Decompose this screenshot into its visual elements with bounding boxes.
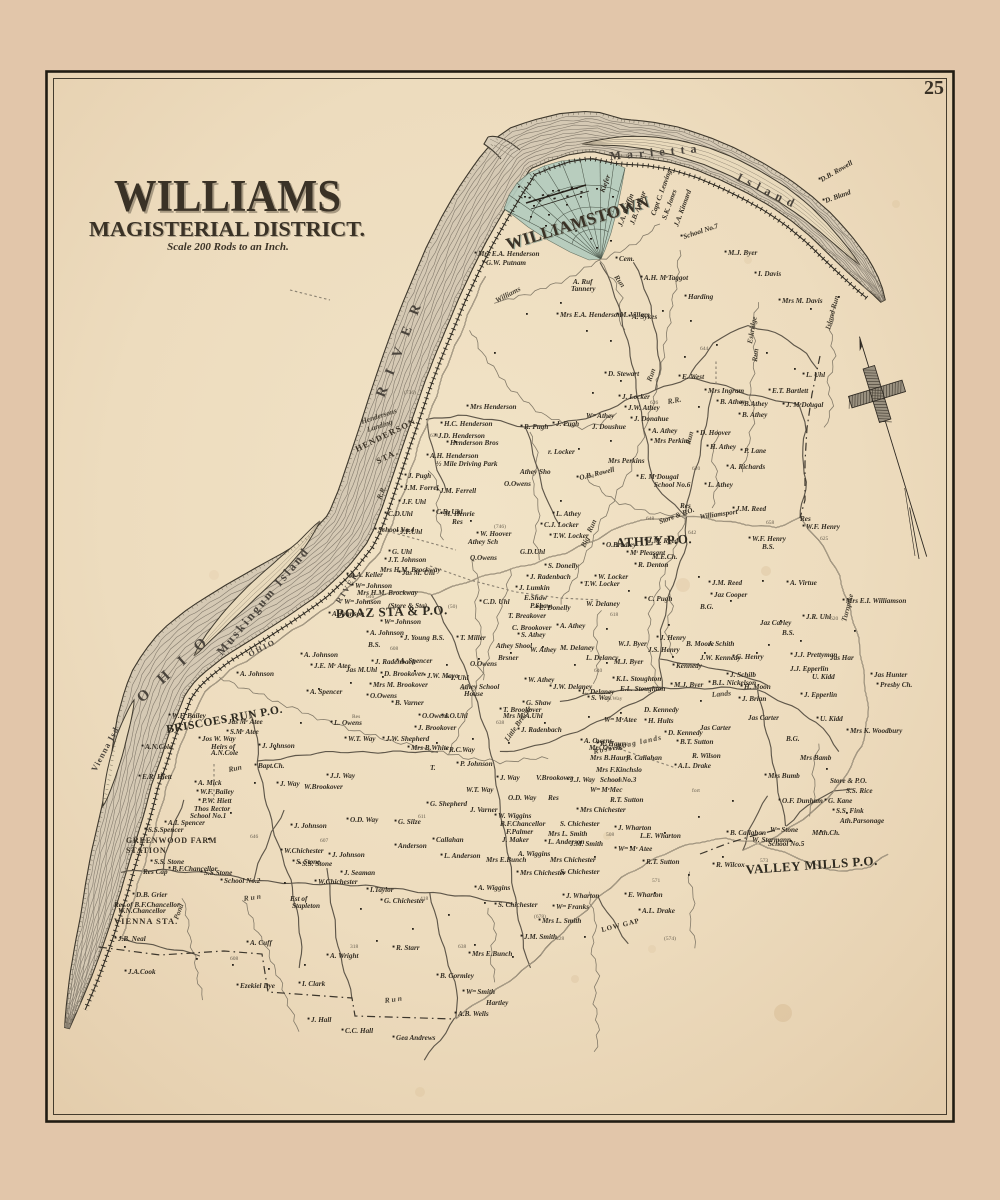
- svg-text:A.A. Keller: A.A. Keller: [349, 571, 383, 579]
- svg-text:Cem.: Cem.: [619, 255, 635, 263]
- svg-text:A.L. Drake: A.L. Drake: [641, 907, 676, 915]
- svg-text:J.M. Reed: J.M. Reed: [711, 579, 743, 587]
- svg-text:Mrs E.A. Henderson: Mrs E.A. Henderson: [477, 250, 540, 258]
- svg-text:A.H. Henderson: A.H. Henderson: [429, 452, 479, 460]
- svg-text:Wᵐ Johnson: Wᵐ Johnson: [384, 618, 421, 626]
- svg-text:J. Hall: J. Hall: [310, 1016, 331, 1024]
- svg-text:M.J. Byer: M.J. Byer: [673, 681, 704, 689]
- svg-text:P. Lane: P. Lane: [744, 447, 767, 455]
- svg-text:A. Wiggins: A. Wiggins: [477, 884, 511, 892]
- svg-text:Mrs F.Kinchslo: Mrs F.Kinchslo: [595, 766, 642, 774]
- svg-text:611: 611: [418, 814, 426, 820]
- svg-text:Res: Res: [799, 515, 811, 523]
- svg-text:D.B. Grier: D.B. Grier: [135, 891, 168, 899]
- svg-text:WILLIAMS: WILLIAMS: [114, 171, 341, 221]
- svg-text:G. Uhl: G. Uhl: [392, 548, 412, 556]
- svg-text:J. Epperlin: J. Epperlin: [803, 691, 837, 699]
- svg-text:A.Johnson: A.Johnson: [331, 610, 364, 618]
- svg-text:A. Wright: A. Wright: [329, 952, 359, 960]
- svg-text:A. Sykes: A. Sykes: [631, 313, 657, 321]
- svg-text:607: 607: [320, 838, 329, 844]
- svg-text:Bapt.Ch.: Bapt.Ch.: [257, 762, 285, 770]
- svg-text:638: 638: [496, 720, 505, 726]
- svg-text:Jas Hunter: Jas Hunter: [873, 671, 908, 679]
- svg-text:628: 628: [460, 686, 469, 692]
- svg-text:J. Brookover: J. Brookover: [417, 724, 457, 732]
- svg-text:Mrs M. Davis: Mrs M. Davis: [781, 297, 823, 305]
- svg-text:Mrs Chichester: Mrs Chichester: [519, 869, 566, 877]
- svg-text:G. Chichester: G. Chichester: [384, 897, 425, 905]
- svg-text:B.G.: B.G.: [785, 735, 800, 743]
- svg-text:H. Moon: H. Moon: [743, 683, 771, 691]
- svg-text:646: 646: [366, 594, 375, 600]
- svg-text:W.Chichester: W.Chichester: [284, 847, 324, 855]
- svg-text:J. Maker: J. Maker: [501, 836, 529, 844]
- svg-text:W.F. Henry: W.F. Henry: [806, 523, 841, 531]
- svg-text:C. Brookover: C. Brookover: [512, 624, 552, 632]
- svg-text:O.D. Way: O.D. Way: [508, 794, 537, 802]
- svg-text:640: 640: [594, 668, 603, 674]
- svg-text:Mrs Chichester: Mrs Chichester: [549, 856, 596, 864]
- svg-text:Wᵐ Mᶜ Atee: Wᵐ Mᶜ Atee: [618, 845, 653, 853]
- svg-text:Brsner: Brsner: [497, 654, 519, 662]
- svg-text:Athey Sho: Athey Sho: [519, 468, 551, 476]
- svg-text:J.J. Way: J.J. Way: [329, 772, 356, 780]
- svg-text:E. Wharton: E. Wharton: [627, 891, 663, 899]
- svg-text:A.H. MᶜTaggot: A.H. MᶜTaggot: [643, 274, 689, 282]
- svg-text:J.F.Uhl: J.F.Uhl: [399, 528, 422, 536]
- svg-text:I.O.Uhl: I.O.Uhl: [444, 712, 468, 720]
- svg-text:A. Johnson: A. Johnson: [369, 629, 404, 637]
- svg-text:Res: Res: [679, 502, 691, 510]
- svg-text:H. Hults: H. Hults: [647, 717, 674, 725]
- svg-text:J. Doushue: J. Doushue: [591, 423, 627, 431]
- svg-text:A. Athey: A. Athey: [651, 427, 678, 435]
- svg-text:(574): (574): [664, 935, 676, 942]
- svg-text:J. Locker: J. Locker: [621, 393, 650, 401]
- svg-text:Jos W. Way: Jos W. Way: [201, 735, 236, 743]
- svg-text:O.F. Dunham: O.F. Dunham: [782, 797, 823, 805]
- svg-text:F.Palmer: F.Palmer: [506, 828, 533, 836]
- svg-text:B.T. Sutton: B.T. Sutton: [679, 738, 714, 746]
- svg-text:M. Delaney: M. Delaney: [559, 644, 595, 652]
- svg-text:J.R. Uhl: J.R. Uhl: [805, 613, 831, 621]
- svg-text:Ezekiel Dye: Ezekiel Dye: [239, 982, 276, 990]
- svg-text:P.W. Hiett: P.W. Hiett: [202, 797, 232, 805]
- svg-text:fort: fort: [692, 787, 700, 794]
- svg-text:M.J. Byer: M.J. Byer: [613, 658, 644, 666]
- svg-text:J.A.Cook: J.A.Cook: [127, 968, 156, 976]
- svg-text:J.S. Henry: J.S. Henry: [647, 646, 681, 654]
- svg-text:S.S. Stone: S.S. Stone: [302, 860, 333, 868]
- svg-text:J.F. Uhl: J.F. Uhl: [401, 498, 426, 506]
- svg-text:I. Uhl: I. Uhl: [450, 674, 469, 682]
- svg-text:448: 448: [614, 778, 623, 784]
- svg-text:W.Brookover: W.Brookover: [304, 783, 343, 791]
- svg-text:A. Virtue: A. Virtue: [789, 579, 818, 587]
- svg-text:J. Johnson: J. Johnson: [261, 742, 295, 750]
- svg-text:J.M. Ferrell: J.M. Ferrell: [439, 487, 476, 495]
- svg-text:W.F. Bailey: W.F. Bailey: [172, 712, 207, 720]
- svg-text:Hartley: Hartley: [485, 999, 509, 1007]
- svg-text:A. Wiggins: A. Wiggins: [517, 850, 551, 858]
- svg-text:S. Athey: S. Athey: [521, 631, 546, 639]
- svg-text:W.J. Byer: W.J. Byer: [618, 640, 647, 648]
- svg-text:S.S. Fink: S.S. Fink: [836, 807, 864, 815]
- svg-text:Scale 200 Rods to an Inch.: Scale 200 Rods to an Inch.: [167, 241, 289, 253]
- svg-text:W. Wiggins: W. Wiggins: [498, 812, 532, 820]
- svg-text:Store & P.O.: Store & P.O.: [830, 777, 867, 785]
- svg-text:A.N.Cole: A.N.Cole: [210, 749, 239, 757]
- svg-text:T. Breakover: T. Breakover: [508, 612, 546, 620]
- svg-text:G. Kane: G. Kane: [828, 797, 853, 805]
- svg-text:R.C.Way: R.C.Way: [448, 746, 476, 754]
- svg-text:J. Donahue: J. Donahue: [633, 415, 670, 423]
- svg-text:620: 620: [692, 466, 701, 472]
- svg-text:S. Chichester: S. Chichester: [498, 901, 538, 909]
- svg-text:J. Varner: J. Varner: [469, 806, 498, 814]
- svg-text:Callahan: Callahan: [436, 836, 464, 844]
- svg-text:642: 642: [688, 530, 697, 536]
- svg-text:L. Anderson: L. Anderson: [443, 852, 480, 860]
- svg-text:Wᵐ Athey: Wᵐ Athey: [586, 412, 615, 420]
- svg-text:I.Taylor: I.Taylor: [369, 886, 394, 894]
- svg-text:L. Athey: L. Athey: [555, 510, 582, 518]
- svg-text:J. Schilb: J. Schilb: [729, 671, 756, 679]
- svg-text:C.D. Uhl: C.D. Uhl: [483, 598, 510, 606]
- svg-text:S. Donelly: S. Donelly: [548, 562, 580, 570]
- svg-text:½ Mile Driving Park: ½ Mile Driving Park: [436, 460, 498, 468]
- svg-text:A.L. Drake: A.L. Drake: [677, 762, 712, 770]
- svg-text:E.R. Hiett: E.R. Hiett: [141, 773, 173, 781]
- svg-text:25: 25: [924, 77, 944, 99]
- svg-text:Jas M.Uhl: Jas M.Uhl: [345, 666, 377, 674]
- svg-text:Mrs Chichester: Mrs Chichester: [579, 806, 626, 814]
- svg-text:428: 428: [556, 936, 565, 942]
- svg-text:J. Pugh: J. Pugh: [407, 472, 431, 480]
- svg-text:Wᵐ MᶜMec: Wᵐ MᶜMec: [590, 786, 623, 794]
- svg-text:J.W. Kennedy: J.W. Kennedy: [699, 654, 742, 662]
- svg-text:Mrs B.White: Mrs B.White: [410, 744, 450, 752]
- svg-text:J. Pugh: J. Pugh: [555, 420, 579, 428]
- svg-text:508: 508: [606, 832, 615, 838]
- svg-text:J.M. Smith: J.M. Smith: [523, 933, 557, 941]
- svg-text:W. Athey: W. Athey: [528, 676, 555, 684]
- svg-text:D. Kennedy: D. Kennedy: [667, 729, 704, 737]
- svg-text:B. Gormley: B. Gormley: [439, 972, 475, 980]
- svg-text:E.L. Stoughton: E.L. Stoughton: [619, 685, 665, 693]
- svg-text:P.Shaw: P.Shaw: [530, 602, 552, 610]
- svg-text:R.T. Sutton: R.T. Sutton: [645, 858, 680, 866]
- svg-text:W.F. Henry: W.F. Henry: [752, 535, 787, 543]
- svg-text:J.T. Johnson: J.T. Johnson: [387, 556, 426, 564]
- svg-text:VIENNA STA.: VIENNA STA.: [114, 916, 178, 926]
- svg-text:A. Mick: A. Mick: [197, 779, 222, 787]
- svg-text:Kennedy: Kennedy: [675, 662, 703, 670]
- svg-text:B. Callahan: B. Callahan: [625, 754, 662, 762]
- svg-text:608: 608: [230, 956, 239, 962]
- svg-text:Mrs Perkins: Mrs Perkins: [653, 437, 691, 445]
- svg-text:M.E.Ch.: M.E.Ch.: [651, 553, 678, 561]
- svg-text:E.T. Bartlett: E.T. Bartlett: [771, 387, 809, 395]
- svg-text:Harding: Harding: [687, 293, 714, 301]
- svg-text:318: 318: [350, 944, 359, 950]
- svg-text:J. Johnson: J. Johnson: [331, 851, 365, 859]
- svg-text:A. Cuff: A. Cuff: [249, 939, 272, 947]
- svg-text:Wᵐ Smith: Wᵐ Smith: [466, 988, 495, 996]
- svg-text:Jas Carter: Jas Carter: [747, 714, 779, 722]
- svg-text:B.S.: B.S.: [761, 543, 775, 551]
- svg-text:R.T. Sutton: R.T. Sutton: [609, 796, 644, 804]
- svg-text:P. Johnson: P. Johnson: [460, 760, 493, 768]
- svg-text:J. Henry: J. Henry: [659, 634, 687, 642]
- svg-text:W.T. Way: W.T. Way: [348, 735, 376, 743]
- svg-text:626: 626: [650, 400, 659, 406]
- svg-text:C. Pugh: C. Pugh: [648, 595, 672, 603]
- svg-text:Res: Res: [352, 714, 360, 720]
- svg-text:C.D.Uhl: C.D.Uhl: [388, 510, 413, 518]
- svg-text:Res: Res: [547, 794, 559, 802]
- svg-text:R. Wilcox: R. Wilcox: [715, 861, 745, 869]
- svg-text:D. Kennedy: D. Kennedy: [643, 706, 680, 714]
- svg-text:L. Owens: L. Owens: [333, 719, 362, 727]
- svg-text:MAGISTERIAL DISTRICT.: MAGISTERIAL DISTRICT.: [89, 217, 365, 241]
- svg-text:638: 638: [458, 944, 467, 950]
- svg-text:D. Brookover: D. Brookover: [383, 670, 424, 678]
- svg-text:J.M. Reed: J.M. Reed: [647, 537, 679, 545]
- svg-text:B. Varner: B. Varner: [394, 699, 424, 707]
- svg-text:Run: Run: [750, 348, 760, 363]
- svg-text:S.S. Rice: S.S. Rice: [846, 787, 873, 795]
- svg-text:C.J. Locker: C.J. Locker: [544, 521, 579, 529]
- svg-text:J.J. Way: J.J. Way: [569, 776, 596, 784]
- svg-text:G.D.Uhl: G.D.Uhl: [520, 548, 545, 556]
- svg-text:J.W. Shepherd: J.W. Shepherd: [385, 735, 430, 743]
- svg-text:Mrs K. Woodbury: Mrs K. Woodbury: [849, 727, 903, 735]
- svg-text:Mrs Henderson: Mrs Henderson: [469, 403, 517, 411]
- svg-text:Jas Har: Jas Har: [829, 654, 854, 662]
- svg-text:R. Starr: R. Starr: [395, 944, 420, 952]
- svg-text:Athey Shool: Athey Shool: [495, 642, 532, 650]
- svg-text:608: 608: [390, 646, 399, 652]
- svg-text:C.C. Hall: C.C. Hall: [345, 1027, 373, 1035]
- svg-text:T.: T.: [430, 764, 436, 772]
- svg-text:L. Athey: L. Athey: [707, 481, 734, 489]
- svg-text:O.Owens: O.Owens: [504, 480, 531, 488]
- svg-text:Mrs E.I. Williamson: Mrs E.I. Williamson: [845, 597, 906, 605]
- svg-text:R. Haury: R. Haury: [599, 740, 628, 748]
- svg-text:B.S.: B.S.: [781, 629, 795, 637]
- svg-text:Ath.Parsonage: Ath.Parsonage: [839, 817, 885, 825]
- svg-text:U. Kidd: U. Kidd: [812, 673, 835, 681]
- svg-text:Mrs M. Brookover: Mrs M. Brookover: [372, 681, 428, 689]
- svg-text:620: 620: [830, 616, 839, 622]
- svg-text:A.N.Cole: A.N.Cole: [144, 743, 173, 751]
- svg-text:Jas Carter: Jas Carter: [699, 724, 731, 732]
- svg-text:(50): (50): [448, 603, 457, 610]
- svg-text:Anderson: Anderson: [397, 842, 427, 850]
- svg-text:Jaz Cooper: Jaz Cooper: [713, 591, 748, 599]
- svg-text:Presby Ch.: Presby Ch.: [880, 681, 913, 689]
- svg-text:J. Brian: J. Brian: [741, 695, 766, 703]
- svg-text:Stapleton: Stapleton: [292, 902, 320, 910]
- svg-text:J. Way: J. Way: [499, 774, 521, 782]
- svg-text:(678): (678): [534, 913, 546, 920]
- svg-text:638: 638: [430, 433, 439, 439]
- svg-text:G.W. Putnam: G.W. Putnam: [486, 259, 526, 267]
- svg-text:R. Pugh: R. Pugh: [523, 423, 548, 431]
- svg-text:U. Kidd: U. Kidd: [820, 715, 843, 723]
- svg-text:STATION: STATION: [126, 846, 166, 855]
- svg-text:Henderson Bros: Henderson Bros: [449, 439, 499, 447]
- svg-text:Mrs Ingram: Mrs Ingram: [707, 387, 745, 395]
- svg-text:J. Radenbach: J. Radenbach: [520, 726, 562, 734]
- svg-text:E.Shaw: E.Shaw: [523, 594, 547, 602]
- svg-text:Res: Res: [451, 518, 463, 526]
- svg-text:S. Chichester: S. Chichester: [560, 820, 600, 828]
- svg-text:Mrs B.Haury: Mrs B.Haury: [589, 754, 630, 762]
- svg-text:R. Denton: R. Denton: [637, 561, 668, 569]
- svg-text:W.T. Way: W.T. Way: [466, 786, 494, 794]
- svg-text:J. Johnson: J. Johnson: [293, 822, 327, 830]
- svg-text:J.J. Epperlin: J.J. Epperlin: [789, 665, 829, 673]
- svg-text:D. Hoover: D. Hoover: [699, 429, 731, 437]
- svg-text:418: 418: [420, 896, 429, 902]
- svg-text:S.S.Spencer: S.S.Spencer: [148, 826, 184, 834]
- svg-text:I. Clark: I. Clark: [301, 980, 326, 988]
- svg-text:J. Radenbach: J. Radenbach: [529, 573, 571, 581]
- svg-text:O.Bradley: O.Bradley: [606, 541, 637, 549]
- svg-text:W. Delaney: W. Delaney: [586, 600, 621, 608]
- svg-text:L. Uhl: L. Uhl: [805, 371, 825, 379]
- svg-text:r. Locker: r. Locker: [548, 448, 575, 456]
- svg-text:J.B. Neal: J.B. Neal: [117, 935, 146, 943]
- svg-text:Mrs L. Smith: Mrs L. Smith: [541, 917, 581, 925]
- svg-text:A. Spencer: A. Spencer: [309, 688, 343, 696]
- svg-text:W.N.Chancellor: W.N.Chancellor: [118, 907, 166, 915]
- svg-text:Wᵐ Stone: Wᵐ Stone: [770, 826, 799, 834]
- svg-text:Mrs M.A.Uhl: Mrs M.A.Uhl: [502, 712, 543, 720]
- svg-text:GREENWOOD FARM: GREENWOOD FARM: [126, 836, 217, 845]
- svg-text:W.F. Bailey: W.F. Bailey: [200, 788, 235, 796]
- svg-text:Tannery: Tannery: [571, 285, 596, 293]
- svg-text:J. MᶜDougal: J. MᶜDougal: [785, 401, 823, 409]
- svg-text:T.W. Locker: T.W. Locker: [553, 532, 589, 540]
- svg-text:D. Stewart: D. Stewart: [607, 370, 640, 378]
- svg-text:Wᵐ MᶜAtee: Wᵐ MᶜAtee: [604, 716, 638, 724]
- svg-text:J. Way: J. Way: [279, 780, 301, 788]
- svg-text:School No.6: School No.6: [654, 481, 691, 489]
- svg-text:J. Lumkin: J. Lumkin: [518, 584, 550, 592]
- svg-text:Q.Owens: Q.Owens: [470, 554, 497, 562]
- svg-text:658: 658: [766, 520, 775, 526]
- svg-text:648: 648: [646, 516, 655, 522]
- svg-text:L.E. Wharton: L.E. Wharton: [639, 832, 681, 840]
- svg-text:628: 628: [586, 474, 595, 480]
- svg-text:B. Athey: B. Athey: [741, 411, 768, 419]
- svg-text:Jas M. Uhl: Jas M. Uhl: [401, 569, 435, 577]
- svg-text:R. Wilson: R. Wilson: [691, 752, 721, 760]
- svg-text:A.B. Wells: A.B. Wells: [457, 1010, 489, 1018]
- svg-text:B.G.: B.G.: [699, 603, 714, 611]
- svg-text:W.Chichester: W.Chichester: [318, 878, 358, 886]
- svg-text:Gea Andrews: Gea Andrews: [396, 1034, 436, 1042]
- svg-text:Mrs E.A. Henderson: Mrs E.A. Henderson: [559, 311, 622, 319]
- svg-text:O.Owens: O.Owens: [470, 660, 497, 668]
- svg-text:J.M. Reed: J.M. Reed: [735, 505, 767, 513]
- svg-text:Wᵐ Johnson: Wᵐ Johnson: [344, 598, 381, 606]
- svg-text:Mrs Bumb: Mrs Bumb: [767, 772, 800, 780]
- svg-text:O.Owens: O.Owens: [370, 692, 397, 700]
- svg-text:E. West: E. West: [681, 373, 705, 381]
- svg-text:School No.5: School No.5: [768, 840, 805, 848]
- svg-text:M. Henrie: M. Henrie: [443, 510, 476, 518]
- svg-text:K.L. Stoughton: K.L. Stoughton: [615, 675, 661, 683]
- svg-text:T. Miller: T. Miller: [460, 634, 486, 642]
- svg-text:B.S.: B.S.: [431, 634, 445, 642]
- svg-text:S.Way: S.Way: [608, 696, 623, 702]
- svg-text:Athey Sch: Athey Sch: [467, 538, 498, 546]
- svg-text:J. Wharton: J. Wharton: [617, 824, 651, 832]
- svg-text:Mrs Bamb: Mrs Bamb: [799, 754, 832, 762]
- svg-text:G. Shepherd: G. Shepherd: [430, 800, 468, 808]
- svg-text:School No.2: School No.2: [224, 877, 261, 885]
- svg-text:B.Athey: B.Athey: [743, 400, 769, 408]
- svg-text:J. Wharton: J. Wharton: [565, 892, 599, 900]
- svg-text:A. Johnson: A. Johnson: [239, 670, 274, 678]
- svg-text:H.C. Henderson: H.C. Henderson: [443, 420, 493, 428]
- svg-text:A. Johnson: A. Johnson: [303, 651, 338, 659]
- svg-text:W. Hoover: W. Hoover: [480, 530, 512, 538]
- svg-text:J.M. Smith: J.M. Smith: [569, 840, 603, 848]
- svg-text:I. Davis: I. Davis: [757, 270, 781, 278]
- svg-text:J.M. Forrel: J.M. Forrel: [403, 484, 439, 492]
- svg-text:S. Chichester: S. Chichester: [560, 868, 600, 876]
- svg-text:B.F.Chancellor: B.F.Chancellor: [499, 820, 546, 828]
- svg-text:625: 625: [820, 536, 829, 542]
- svg-text:618: 618: [610, 612, 619, 618]
- svg-text:A. Spencer: A. Spencer: [399, 657, 433, 665]
- svg-text:T.W. Locker: T.W. Locker: [584, 580, 620, 588]
- svg-text:M.J. Byer: M.J. Byer: [727, 249, 758, 257]
- svg-text:Jaz Carley: Jaz Carley: [759, 619, 792, 627]
- svg-text:B.S.: B.S.: [367, 641, 381, 649]
- svg-text:Res Cap: Res Cap: [142, 868, 168, 876]
- svg-text:573: 573: [760, 858, 769, 864]
- svg-text:S.S.Stone: S.S.Stone: [204, 869, 233, 877]
- svg-text:J. Schith: J. Schith: [707, 640, 734, 648]
- svg-text:Mrs L. Smith: Mrs L. Smith: [547, 830, 587, 838]
- svg-text:Lands: Lands: [710, 688, 731, 699]
- svg-text:J. Young: J. Young: [403, 634, 430, 642]
- svg-text:Wᵐ Franks: Wᵐ Franks: [556, 903, 589, 911]
- svg-text:J. Seaman: J. Seaman: [343, 869, 375, 877]
- svg-text:646: 646: [250, 834, 259, 840]
- svg-text:E. MᶜDougal: E. MᶜDougal: [639, 473, 679, 481]
- svg-text:571: 571: [652, 878, 661, 884]
- svg-text:(Store & Sta): (Store & Sta): [388, 602, 427, 610]
- svg-text:A. Athey: A. Athey: [559, 622, 586, 630]
- svg-text:A. Richards: A. Richards: [729, 463, 765, 471]
- svg-text:(736): (736): [404, 389, 416, 396]
- svg-text:Mrs Perkins: Mrs Perkins: [607, 457, 645, 465]
- svg-text:Jas Mᶜ Atee: Jas Mᶜ Atee: [227, 718, 264, 726]
- svg-text:Meth.Ch.: Meth.Ch.: [811, 829, 840, 837]
- svg-text:O.D. Way: O.D. Way: [350, 816, 379, 824]
- svg-text:(746): (746): [494, 523, 506, 530]
- svg-text:H. Athey: H. Athey: [709, 443, 737, 451]
- svg-text:644: 644: [700, 346, 709, 352]
